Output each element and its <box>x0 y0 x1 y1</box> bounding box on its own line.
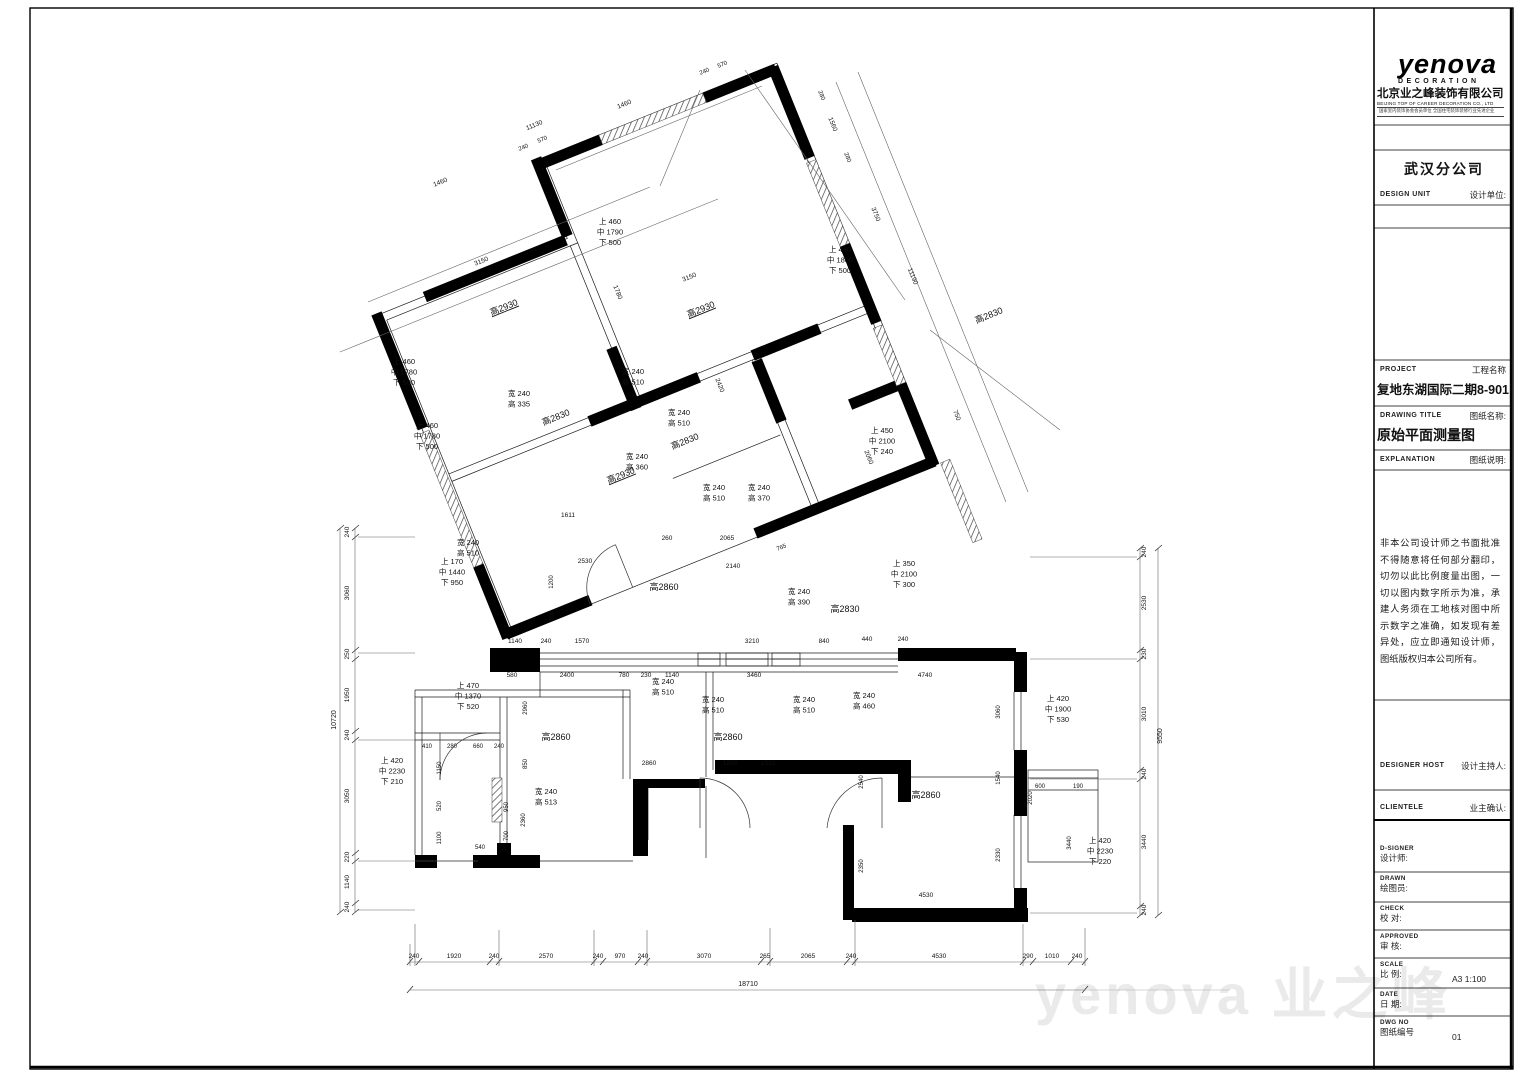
plan-label: 970 <box>615 953 626 960</box>
plan-label: 3070 <box>697 953 712 960</box>
plan-label: 2960 <box>523 701 529 715</box>
plan-label: 3440 <box>1067 836 1073 850</box>
drawing-title-en: DRAWING TITLE <box>1380 412 1442 421</box>
designer-host-cn: 设计主持人: <box>1461 762 1506 771</box>
plan-label: 240 <box>344 901 351 912</box>
plan-label: 上 420中 2230下 210 <box>379 756 405 786</box>
plan-label: 840 <box>819 638 830 645</box>
plan-label: 4530 <box>932 953 947 960</box>
company-cert-line: 国家室内装饰协会会员单位 全国住宅装饰装修行业先进企业 <box>1377 108 1504 117</box>
plan-label: 765 <box>776 543 788 553</box>
plan-label: 570 <box>537 135 549 145</box>
check-en: CHECK <box>1380 906 1404 913</box>
plan-label: 290 <box>1023 953 1034 960</box>
drawing-title-cn: 图纸名称: <box>1470 412 1506 421</box>
plan-label: 240 <box>344 526 351 537</box>
plan-label: 520 <box>437 800 443 811</box>
plan-label: 540 <box>475 845 486 851</box>
plan-label: 2360 <box>521 813 527 827</box>
plan-label: 280 <box>816 90 826 102</box>
plan-label: 宽 240高 510 <box>652 676 674 697</box>
plan-label: 上 470中 1370下 520 <box>455 681 481 711</box>
plan-label: 高2830 <box>669 430 700 451</box>
plan-label: 1140 <box>508 638 522 645</box>
dwg-no-cn: 图纸编号 <box>1380 1028 1414 1037</box>
plan-label: 240 <box>518 143 530 153</box>
check-cn: 校 对: <box>1380 914 1404 923</box>
plan-label: 宽 240高 510 <box>668 407 690 428</box>
plan-label: 1010 <box>761 760 776 767</box>
plan-label: 1460 <box>616 99 632 111</box>
plan-label: 1540 <box>996 771 1002 785</box>
design-unit-cn: 设计单位: <box>1470 191 1506 200</box>
plan-label: 240 <box>541 638 552 645</box>
plan-label: 1250 <box>723 760 738 767</box>
plan-label: 230 <box>641 672 652 679</box>
branch-name: 武汉分公司 <box>1404 162 1484 177</box>
plan-label: 宽 240高 513 <box>535 786 557 807</box>
plan-label: 240 <box>1141 904 1148 915</box>
explanation-cn: 图纸说明: <box>1470 456 1506 465</box>
plan-label: 3460 <box>747 672 762 679</box>
clientele-cn: 业主确认: <box>1470 804 1506 813</box>
plan-label: 3010 <box>1141 706 1148 721</box>
plan-label: 高2830 <box>540 406 571 427</box>
plan-label: 780 <box>619 672 630 679</box>
plan-label: 上 450中 2100下 240 <box>869 426 895 456</box>
plan-label: 10720 <box>331 710 338 730</box>
logo-wordmark: yenova <box>1398 50 1497 80</box>
plan-label: 1150 <box>437 761 443 775</box>
plan-label: 9550 <box>1157 728 1164 744</box>
plan-label: 18710 <box>738 981 758 988</box>
plan-label: 2530 <box>578 558 593 565</box>
scale-cn: 比 例: <box>1380 970 1403 979</box>
scale-value: A3 1:100 <box>1452 975 1486 984</box>
rotated-wing <box>340 57 982 720</box>
explanation-body: 非本公司设计师之书面批准不得随意将任何部分翻印，切勿以此比例度量出图，一切以图内… <box>1380 535 1500 667</box>
plan-label: 3060 <box>344 585 351 600</box>
company-name-cn: 北京业之峰装饰有限公司 <box>1377 88 1504 101</box>
plan-label: 上 420中 1900下 530 <box>1045 694 1071 724</box>
plan-label: 220 <box>344 851 351 862</box>
plan-label: 2065 <box>720 535 735 542</box>
plan-label: 宽 240高 510 <box>793 694 815 715</box>
plan-label: 900 <box>550 610 556 621</box>
plan-label: 11130 <box>525 119 544 132</box>
plan-label: 上 350中 2100下 300 <box>891 559 917 589</box>
plan-label: 3210 <box>745 638 760 645</box>
plan-label: 250 <box>344 648 351 659</box>
plan-label: 440 <box>862 636 873 643</box>
plan-label: 上 460中 1790下 500 <box>597 217 623 247</box>
plan-label: 240 <box>489 953 500 960</box>
approved-en: APPROVED <box>1380 934 1419 941</box>
plan-label: 240 <box>1072 953 1083 960</box>
drawn-en: DRAWN <box>1380 876 1408 883</box>
plan-label: 上 440中 1800下 500 <box>827 245 853 275</box>
project-value: 复地东湖国际二期8-901 <box>1377 384 1509 398</box>
plan-label: 230 <box>1141 648 1148 659</box>
plan-label: 1611 <box>561 512 575 519</box>
plan-label: 1780 <box>611 284 623 300</box>
plan-label: 宽 240高 335 <box>508 388 530 409</box>
plan-label: 上 420中 2230下 220 <box>1087 836 1113 866</box>
plan-label: 11190 <box>906 267 919 286</box>
plan-label: 2330 <box>996 848 1002 862</box>
date-en: DATE <box>1380 992 1402 999</box>
plan-label: 240 <box>898 636 909 643</box>
plan-label: 280 <box>842 152 852 164</box>
plan-label: 3750 <box>869 206 881 222</box>
explanation-en: EXPLANATION <box>1380 456 1435 465</box>
floor-plan-svg: 高2930高2930高2830高2830高2930高2830高2830高2860… <box>0 0 1528 1080</box>
plan-label: 3060 <box>996 705 1002 719</box>
plan-label: 上 460中 1780下 500 <box>391 357 417 387</box>
plan-label: 750 <box>951 409 962 422</box>
logo: yenova DECORATION <box>1398 50 1497 85</box>
plan-label: 上 170中 1440下 950 <box>439 557 465 587</box>
plan-label: 240 <box>409 953 420 960</box>
plan-label: 240 <box>638 953 649 960</box>
clientele-en: CLIENTELE <box>1380 804 1423 813</box>
plan-label: 3150 <box>681 272 697 284</box>
drawing-title-value: 原始平面测量图 <box>1377 428 1475 443</box>
plan-label: 2400 <box>560 672 575 679</box>
plan-label: 700 <box>504 830 510 841</box>
dwg-no-en: DWG NO <box>1380 1020 1414 1027</box>
plan-label: 高2860 <box>541 731 570 742</box>
designer-cn: 设计师: <box>1380 854 1414 863</box>
plan-label: 265 <box>760 953 771 960</box>
drawn-cn: 绘图员: <box>1380 884 1408 893</box>
plan-label: 高2930 <box>488 296 519 317</box>
plan-label: 高2860 <box>649 581 678 592</box>
plan-label: 上 460中 1780下 500 <box>414 421 440 451</box>
plan-label: 2530 <box>1141 595 1148 610</box>
plan-label: 1560 <box>826 116 838 132</box>
plan-label: 570 <box>717 60 729 70</box>
plan-label: 190 <box>1073 784 1084 790</box>
plan-label: 1920 <box>447 953 462 960</box>
plan-label: 1460 <box>432 177 448 189</box>
plan-label: 1950 <box>344 687 351 702</box>
design-unit-en: DESIGN UNIT <box>1380 191 1431 200</box>
plan-label: 1570 <box>575 638 590 645</box>
plan-label: 280 <box>447 744 458 750</box>
approved-cn: 审 核: <box>1380 942 1419 951</box>
plan-label: 高2830 <box>973 304 1004 325</box>
plan-label: 3050 <box>344 788 351 803</box>
plan-label: 1140 <box>344 875 351 889</box>
dwg-no-value: 01 <box>1452 1033 1461 1042</box>
dim-chains <box>337 525 1230 993</box>
plan-label: 240 <box>699 67 711 77</box>
plan-label: 2020 <box>1028 791 1034 805</box>
plan-label: 4530 <box>919 892 934 899</box>
plan-label: 2540 <box>859 775 865 789</box>
plan-label: 580 <box>507 672 518 679</box>
plan-label: 1200 <box>549 575 555 589</box>
plan-label: 宽 240高 510 <box>703 482 725 503</box>
plan-label: 2065 <box>801 953 816 960</box>
plan-label: 3440 <box>1141 834 1148 849</box>
scale-en: SCALE <box>1380 962 1403 969</box>
plan-label: 1010 <box>1045 953 1060 960</box>
project-en: PROJECT <box>1380 366 1417 375</box>
plan-label: 240 <box>494 744 505 750</box>
date-cn: 日 期: <box>1380 1000 1402 1009</box>
plan-label: 240 <box>1141 768 1148 779</box>
plan-label: 宽 240高 360 <box>626 451 648 472</box>
plan-label: 宽 240高 460 <box>853 690 875 711</box>
plan-label: 高2860 <box>911 789 940 800</box>
plan-label: 高2860 <box>713 731 742 742</box>
designer-host-en: DESIGNER HOST <box>1380 762 1444 771</box>
plan-label: 2570 <box>539 953 554 960</box>
plan-label: 1140 <box>665 672 679 679</box>
plan-label: 2420 <box>713 377 725 393</box>
plan-label: 4740 <box>918 672 933 679</box>
plan-label: 宽 240高 370 <box>748 482 770 503</box>
designer-en: D-SIGNER <box>1380 846 1414 853</box>
plan-label: 950 <box>504 801 510 812</box>
company-name-en: BEIJING TOP OF CAREER DECORATION CO., LT… <box>1377 101 1504 108</box>
plan-label: 600 <box>1035 784 1046 790</box>
project-cn: 工程名称 <box>1472 366 1506 375</box>
plan-label: 240 <box>1141 546 1148 557</box>
plan-label: 3150 <box>473 256 489 268</box>
plan-label: 240 <box>593 953 604 960</box>
plan-label: 1100 <box>437 831 443 845</box>
plan-label: 2140 <box>726 563 741 570</box>
plan-label: 2350 <box>859 859 865 873</box>
plan-label: 850 <box>523 758 529 769</box>
plan-label: 240 <box>344 729 351 740</box>
drawing-sheet: yenova 业之峰 <box>0 0 1528 1080</box>
plan-label: 260 <box>662 535 673 542</box>
plan-label: 高2830 <box>830 603 859 614</box>
plan-label: 410 <box>422 744 433 750</box>
plan-label: 宽 240高 390 <box>788 586 810 607</box>
plan-label: 240 <box>846 953 857 960</box>
plan-label: 高2930 <box>685 298 716 319</box>
plan-label: 2860 <box>642 760 657 767</box>
plan-label: 660 <box>473 744 484 750</box>
door-arc <box>573 545 633 605</box>
sheet-border <box>30 8 1513 1069</box>
